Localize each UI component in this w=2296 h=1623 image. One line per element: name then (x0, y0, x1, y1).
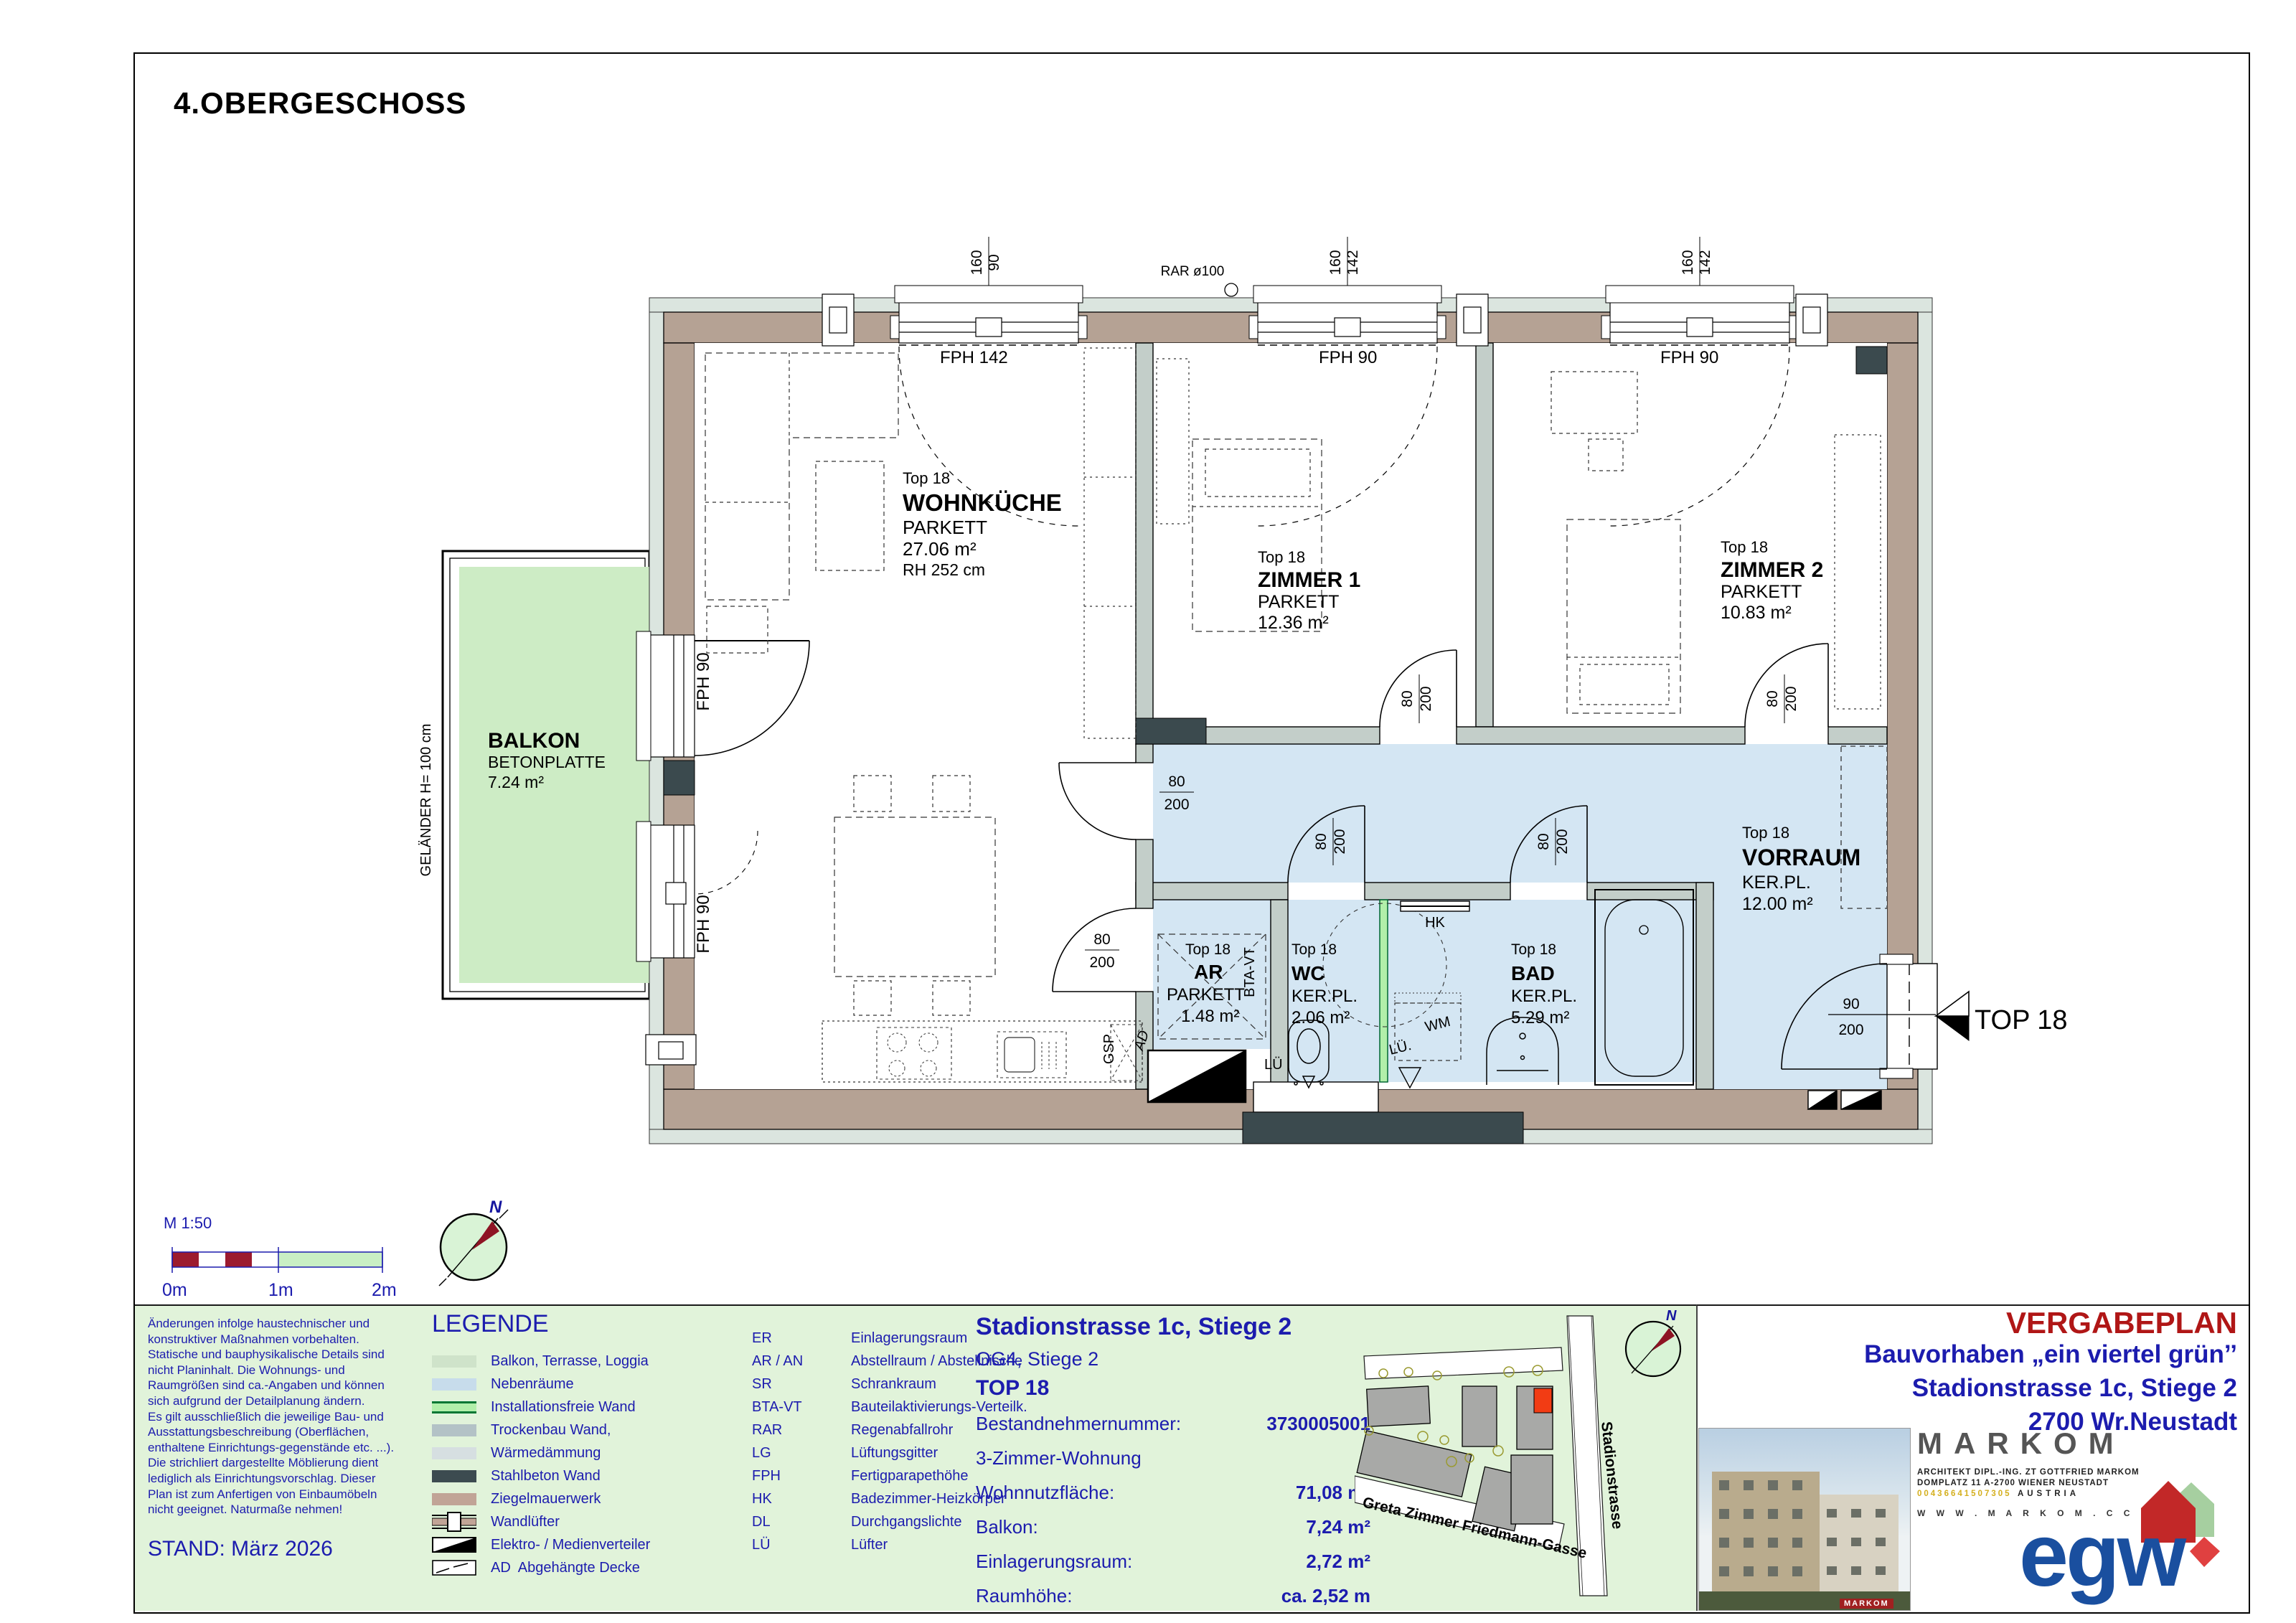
svg-text:200: 200 (1089, 954, 1114, 971)
svg-text:RH 252 cm: RH 252 cm (903, 560, 985, 579)
legend-item: Wandlüfter (432, 1511, 560, 1533)
swatch-installation-free-wall (432, 1401, 476, 1413)
svg-text:FPH 90: FPH 90 (1319, 348, 1377, 367)
svg-text:FPH 90: FPH 90 (1660, 348, 1718, 367)
svg-text:PARKETT: PARKETT (1258, 592, 1339, 612)
site-highlight-unit (1534, 1388, 1552, 1413)
info-row: Raumhöhe:ca. 2,52 m (976, 1585, 1370, 1607)
swatch-wall-ventilator (432, 1510, 476, 1534)
info-row: 3-Zimmer-Wohnung (976, 1447, 1370, 1469)
legend-item: Wärmedämmung (432, 1442, 601, 1464)
info-title: Stadionstrasse 1c, Stiege 2 (976, 1313, 1370, 1341)
info-row: Bestandnehmernummer:3730005001 (976, 1413, 1370, 1435)
disclaimer-text: Änderungen infolge haustechnischer undko… (148, 1316, 435, 1518)
svg-text:200: 200 (1418, 686, 1434, 711)
balcony (443, 551, 649, 999)
svg-text:12.36 m²: 12.36 m² (1258, 613, 1329, 633)
svg-text:Top 18: Top 18 (1291, 941, 1337, 958)
photo-watermark: MARKOM (1840, 1599, 1893, 1609)
legend-item: Ziegelmauerwerk (432, 1488, 601, 1510)
entrance-marker: TOP 18 (1936, 992, 2068, 1040)
info-row: Einlagerungsraum:2,72 m² (976, 1551, 1370, 1573)
svg-text:80: 80 (1093, 931, 1110, 948)
abbrev-row: DLDurchgangslichte (752, 1514, 962, 1535)
north-label: N (489, 1198, 502, 1217)
info-row: Balkon:7,24 m² (976, 1516, 1370, 1538)
svg-text:7.24 m²: 7.24 m² (488, 773, 544, 791)
svg-text:Top 18: Top 18 (1185, 941, 1231, 958)
abbrev-row: EREinlagerungsraum (752, 1330, 967, 1352)
floor-plan: TOP 18 (0, 0, 2296, 1306)
rar-symbol: RAR ø100 (1161, 264, 1238, 296)
svg-text:27.06 m²: 27.06 m² (903, 538, 977, 560)
svg-text:AR: AR (1194, 961, 1223, 983)
swatch-concrete-wall (432, 1470, 476, 1482)
svg-text:80: 80 (1168, 773, 1185, 790)
svg-text:WOHNKÜCHE: WOHNKÜCHE (903, 489, 1062, 516)
svg-text:200: 200 (1164, 796, 1189, 813)
svg-text:M 1:50: M 1:50 (164, 1214, 212, 1232)
svg-text:PARKETT: PARKETT (1167, 985, 1245, 1005)
svg-text:RAR ø100: RAR ø100 (1161, 264, 1225, 279)
svg-text:160: 160 (969, 250, 985, 275)
legend-item: Installationsfreie Wand (432, 1396, 636, 1418)
svg-text:2.06 m²: 2.06 m² (1291, 1008, 1350, 1027)
svg-text:80: 80 (1399, 690, 1416, 707)
svg-text:80: 80 (1313, 833, 1330, 850)
svg-text:Top 18: Top 18 (1721, 538, 1768, 556)
svg-text:142: 142 (1697, 250, 1713, 275)
svg-text:PARKETT: PARKETT (903, 517, 987, 538)
svg-text:200: 200 (1554, 829, 1571, 854)
svg-text:KER.PL.: KER.PL. (1742, 872, 1811, 893)
legend-item: ADAbgehängte Decke (432, 1557, 640, 1579)
concrete-bottom-band (1243, 1112, 1523, 1144)
title-block: VERGABEPLAN Bauvorhaben „ein viertel grü… (1696, 1304, 2249, 1611)
svg-text:80: 80 (1535, 833, 1552, 850)
scale-bar: M 1:50 0m 1m 2m (162, 1214, 397, 1300)
hk-label: HK (1425, 915, 1445, 931)
swatch-secondary-rooms (432, 1378, 476, 1391)
svg-text:BTA-VT: BTA-VT (1242, 947, 1258, 997)
svg-text:80: 80 (1764, 690, 1781, 707)
compass-main: N (439, 1198, 508, 1286)
building-photo: MARKOM (1698, 1428, 1911, 1611)
svg-text:PARKETT: PARKETT (1721, 582, 1802, 602)
installation-free-wall (1380, 900, 1388, 1082)
egw-wordmark: egw (2019, 1506, 2187, 1605)
svg-text:10.83 m²: 10.83 m² (1721, 603, 1792, 623)
swatch-electro-distributor (432, 1533, 476, 1557)
svg-text:160: 160 (1680, 250, 1696, 275)
svg-text:BAD: BAD (1511, 962, 1555, 984)
svg-text:12.00 m²: 12.00 m² (1742, 894, 1813, 914)
plan-date: STAND: März 2026 (148, 1537, 333, 1561)
abbrev-row: HKBadezimmer-Heizkörper (752, 1491, 1006, 1513)
abbrev-row: LÜLüfter (752, 1537, 888, 1558)
abbrev-row: RARRegenabfallrohr (752, 1422, 953, 1444)
svg-text:GSP: GSP (1101, 1034, 1117, 1064)
info-row: Wohnnutzfläche:71,08 m² (976, 1482, 1370, 1504)
abbrev-row: SRSchrankraum (752, 1376, 936, 1398)
svg-text:160: 160 (1327, 250, 1344, 275)
abbrev-row: FPHFertigparapethöhe (752, 1468, 968, 1490)
svg-text:ZIMMER 1: ZIMMER 1 (1258, 568, 1360, 592)
svg-text:FPH 142: FPH 142 (940, 348, 1008, 367)
svg-text:1m: 1m (268, 1280, 293, 1300)
svg-text:KER.PL.: KER.PL. (1291, 987, 1358, 1006)
info-floor: OG4, Stiege 2 (976, 1348, 1370, 1370)
abbrev-row: LGLüftungsgitter (752, 1445, 938, 1467)
svg-text:Top 18: Top 18 (1258, 548, 1305, 566)
svg-text:1.48 m²: 1.48 m² (1181, 1007, 1239, 1026)
svg-text:BETONPLATTE: BETONPLATTE (488, 753, 606, 771)
architect-logo: MARKOM (1917, 1426, 2233, 1461)
entrance-label: TOP 18 (1975, 1005, 2068, 1035)
info-unit: TOP 18 (976, 1376, 1370, 1401)
svg-text:90: 90 (986, 254, 1002, 270)
legend-item: Elektro- / Medienverteiler (432, 1534, 650, 1556)
north-label: N (1666, 1308, 1677, 1324)
project-address: Bauvorhaben „ein viertel grün’’ Stadions… (1698, 1337, 2237, 1439)
svg-text:VORRAUM: VORRAUM (1742, 845, 1860, 870)
svg-text:200: 200 (1838, 1022, 1863, 1038)
svg-text:KER.PL.: KER.PL. (1511, 987, 1577, 1006)
svg-text:WC: WC (1291, 962, 1325, 984)
svg-text:2m: 2m (372, 1280, 397, 1300)
site-plan: Greta Zimmer Friedmann-Gasse Stadionstra… (1355, 1307, 1698, 1609)
svg-text:200: 200 (1332, 829, 1348, 854)
plan-type: VERGABEPLAN (1698, 1306, 2237, 1340)
svg-text:GELÄNDER H= 100 cm: GELÄNDER H= 100 cm (418, 724, 434, 877)
swatch-suspended-ceiling (432, 1556, 476, 1580)
svg-text:Top 18: Top 18 (903, 469, 950, 487)
window-dimension-labels: 160 90 160 142 160 142 (969, 250, 1713, 275)
svg-text:200: 200 (1783, 686, 1799, 711)
svg-text:Top 18: Top 18 (1511, 941, 1556, 958)
legend-title: LEGENDE (432, 1310, 549, 1338)
swatch-insulation (432, 1447, 476, 1459)
swatch-drywall (432, 1424, 476, 1436)
svg-text:0m: 0m (162, 1280, 187, 1300)
legend-item: Stahlbeton Wand (432, 1465, 601, 1487)
egw-logo: egw (1998, 1462, 2241, 1606)
legend-item: Trockenbau Wand, (432, 1419, 611, 1441)
compass-site: N (1626, 1308, 1680, 1376)
apartment-info: Stadionstrasse 1c, Stiege 2 OG4, Stiege … (976, 1313, 1370, 1607)
legend-item: Nebenräume (432, 1373, 574, 1395)
svg-text:LÜ: LÜ (1264, 1057, 1283, 1073)
swatch-balcony (432, 1355, 476, 1368)
svg-text:Top 18: Top 18 (1742, 824, 1789, 842)
svg-text:142: 142 (1345, 250, 1361, 275)
svg-text:FPH 90: FPH 90 (694, 895, 713, 953)
swatch-brick-wall (432, 1493, 476, 1505)
svg-text:90: 90 (1843, 996, 1859, 1012)
svg-text:5.29 m²: 5.29 m² (1511, 1008, 1569, 1027)
bottom-niche (1253, 1082, 1378, 1112)
svg-text:BALKON: BALKON (488, 729, 580, 753)
legend-item: Balkon, Terrasse, Loggia (432, 1350, 649, 1372)
svg-text:FPH 90: FPH 90 (694, 652, 713, 710)
svg-text:ZIMMER 2: ZIMMER 2 (1721, 558, 1823, 582)
